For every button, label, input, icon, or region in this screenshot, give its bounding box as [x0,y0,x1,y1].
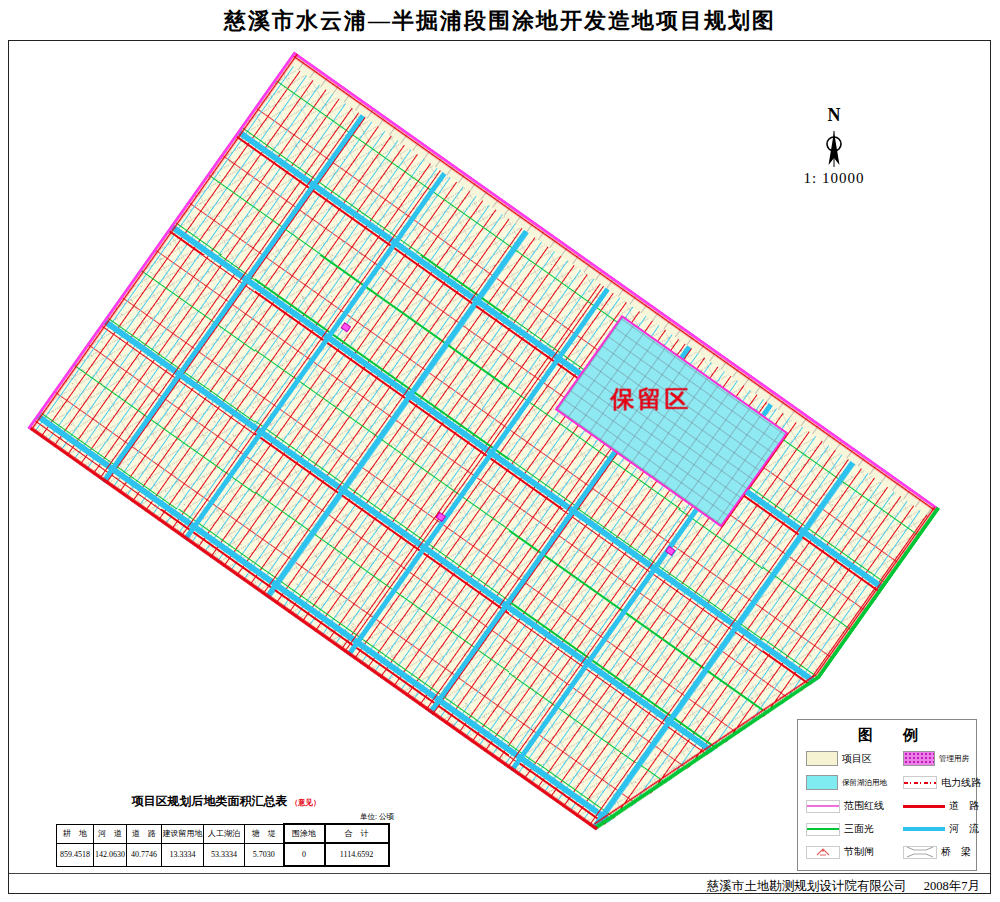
north-indicator: N 1: 10000 [784,105,884,187]
legend-item-power-line: 电力线路 [903,776,981,790]
col-header: 耕 地 [57,824,94,843]
cell-value: 0 [284,843,325,866]
bridge-icon [903,846,937,859]
north-label: N [784,105,884,126]
col-header: 合 计 [325,824,389,843]
col-header: 塘 堤 [245,824,284,843]
legend-item-river: 河 流 [903,822,981,836]
legend-grid: 项目区 管理用房 保留湖泊用地 电力线路 范围红线 [806,751,970,859]
legend-item-boundary-red-line: 范围红线 [806,799,901,813]
table-unit: 单位: 公顷 [56,812,394,822]
credit-company: 慈溪市土地勘测规划设计院有限公司 [707,879,907,893]
legend-item-reserved-lake-land: 保留湖泊用地 [806,775,901,790]
credit-date: 2008年7月 [924,879,980,893]
legend-item-road: 道 路 [903,799,981,813]
col-header: 围涂地 [284,824,325,843]
legend-item-bridge: 桥 梁 [903,845,981,859]
three-sided-canal-swatch [806,823,840,836]
col-header: 河 道 [94,824,127,843]
page: 慈溪市水云浦—半掘浦段围涂地开发造地项目规划图 保留区 N [0,0,1000,902]
map-scale: 1: 10000 [784,170,884,187]
cell-value: 859.4518 [57,843,94,866]
boundary-red-line-swatch [806,800,840,813]
col-header: 道 路 [127,824,162,843]
credit: 慈溪市土地勘测规划设计院有限公司 2008年7月 [707,878,980,894]
management-building-swatch [903,751,935,766]
reserved-lake-swatch [806,775,838,790]
footer-divider [9,873,990,874]
table-value-row: 859.4518 142.0630 40.7746 13.3334 53.333… [57,843,389,866]
north-arrow-icon [821,128,847,168]
cell-value: 142.0630 [94,843,127,866]
area-summary: 项目区规划后地类面积汇总表 （意见） 单位: 公顷 耕 地 河 道 道 路 建设… [56,793,396,867]
map-sheet: 保留区 N 1: 10000 图 例 项目区 [8,40,991,894]
cell-value: 40.7746 [127,843,162,866]
col-header: 人工湖泊 [204,824,245,843]
legend-title: 图 例 [806,726,970,745]
table-title: 项目区规划后地类面积汇总表 [132,794,288,808]
river-swatch [903,827,945,831]
control-gate-icon [806,846,840,859]
project-area-swatch [806,751,838,766]
table-header-row: 耕 地 河 道 道 路 建设留用地 人工湖泊 塘 堤 围涂地 合 计 [57,824,389,843]
power-line-swatch [903,776,937,789]
legend: 图 例 项目区 管理用房 保留湖泊用地 电力线路 [797,719,977,871]
cell-value: 5.7030 [245,843,284,866]
road-swatch [903,805,945,808]
legend-item-control-gate: 节制闸 [806,845,901,859]
cell-value: 1114.6592 [325,843,389,866]
area-summary-table: 耕 地 河 道 道 路 建设留用地 人工湖泊 塘 堤 围涂地 合 计 859.4… [56,823,390,867]
legend-item-management-building: 管理用房 [903,751,981,766]
col-header: 建设留用地 [162,824,204,843]
cell-value: 53.3334 [204,843,245,866]
page-title: 慈溪市水云浦—半掘浦段围涂地开发造地项目规划图 [0,6,1000,36]
reserved-area-label: 保留区 [610,383,691,415]
table-title-note: （意见） [291,798,321,807]
legend-item-three-sided-canal: 三面光 [806,822,901,836]
cell-value: 13.3334 [162,843,204,866]
legend-item-project-area: 项目区 [806,751,901,766]
